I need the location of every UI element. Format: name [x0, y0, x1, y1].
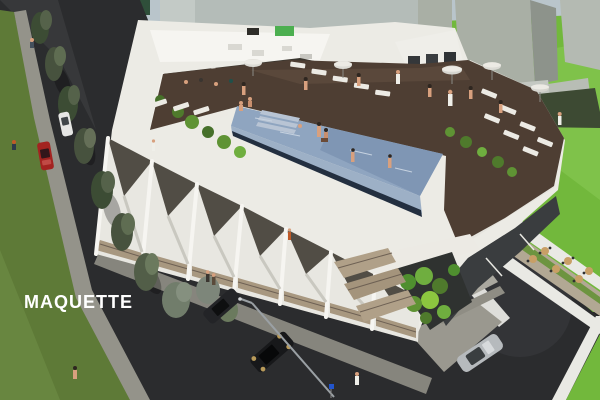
architectural-rendering: MAQUETTE	[0, 0, 600, 400]
pedestrian	[30, 38, 34, 48]
parking-sign	[329, 384, 334, 389]
cyclist	[12, 140, 16, 150]
pedestrian	[73, 366, 77, 379]
green-roof-feature	[275, 26, 294, 36]
pedestrian	[355, 372, 359, 385]
pedestrian	[206, 270, 210, 282]
watermark-label: MAQUETTE	[24, 292, 133, 312]
rendering-canvas: MAQUETTE	[0, 0, 600, 400]
pedestrian	[212, 273, 216, 285]
